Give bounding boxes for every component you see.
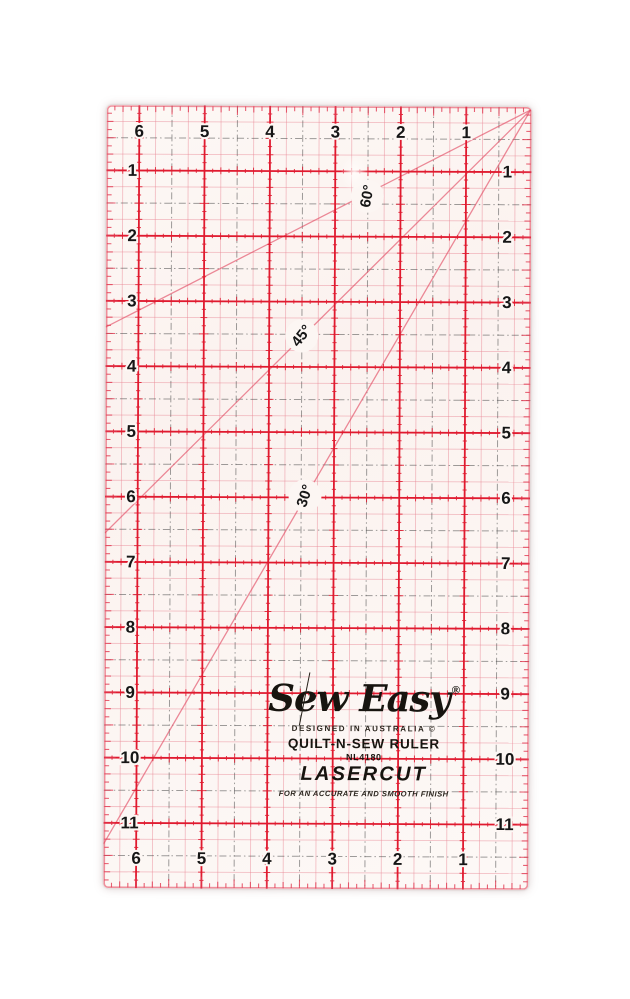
ruler-number-left: 2 <box>127 226 137 245</box>
photo-backdrop: 60°45°30°6543216543211234567891011123456… <box>0 0 630 999</box>
ruler-number-right: 11 <box>496 815 514 834</box>
model-number: NL4180 <box>208 752 520 763</box>
ruler-number-left: 10 <box>120 748 139 767</box>
ruler-number-bottom: 4 <box>262 849 272 868</box>
ruler-number-left: 11 <box>121 813 139 832</box>
ruler-number-left: 7 <box>126 552 136 571</box>
ruler-number-left: 8 <box>126 618 136 637</box>
ruler-number-left: 1 <box>128 161 138 180</box>
ruler-number-left: 9 <box>125 683 135 702</box>
product-name: QUILT-N-SEW RULER <box>208 736 520 752</box>
ruler-number-bottom: 3 <box>327 850 337 869</box>
reflection-blob <box>340 154 368 192</box>
ruler-number-right: 1 <box>503 163 513 182</box>
ruler-number-top: 2 <box>396 123 406 142</box>
ruler-number-left: 6 <box>126 487 136 506</box>
ruler-number-left: 3 <box>127 291 137 310</box>
ruler-number-left: 4 <box>127 357 137 376</box>
ruler-number-left: 5 <box>127 422 137 441</box>
ruler-number-right: 4 <box>502 358 512 377</box>
ruler-number-bottom: 2 <box>393 850 403 869</box>
sewing-ruler: 60°45°30°6543216543211234567891011123456… <box>103 105 531 890</box>
ruler-number-top: 3 <box>331 123 341 142</box>
ruler-number-bottom: 6 <box>131 849 141 868</box>
brand-logo: Sew Easy <box>268 676 450 721</box>
ruler-number-top: 6 <box>135 122 145 141</box>
lasercut-text: LASERCUT <box>208 763 520 787</box>
branding-block: Sew Easy® DESIGNED IN AUSTRALIA © QUILT-… <box>208 680 521 799</box>
origin-text: DESIGNED IN AUSTRALIA © <box>208 724 520 734</box>
ruler-number-top: 1 <box>461 123 471 142</box>
brand-logo-row: Sew Easy® <box>208 680 520 718</box>
ruler-number-right: 5 <box>502 424 512 443</box>
ruler-number-right: 3 <box>502 293 512 312</box>
ruler-number-top: 4 <box>265 122 275 141</box>
registered-mark: ® <box>452 685 460 697</box>
tagline-text: FOR AN ACCURATE AND SMOOTH FINISH <box>208 789 520 799</box>
ruler-number-right: 6 <box>501 489 511 508</box>
ruler-number-bottom: 1 <box>458 850 468 869</box>
ruler-number-right: 2 <box>502 228 512 247</box>
ruler-number-bottom: 5 <box>197 849 207 868</box>
ruler-number-right: 8 <box>501 619 511 638</box>
ruler-number-right: 7 <box>501 554 511 573</box>
ruler-number-top: 5 <box>200 122 210 141</box>
